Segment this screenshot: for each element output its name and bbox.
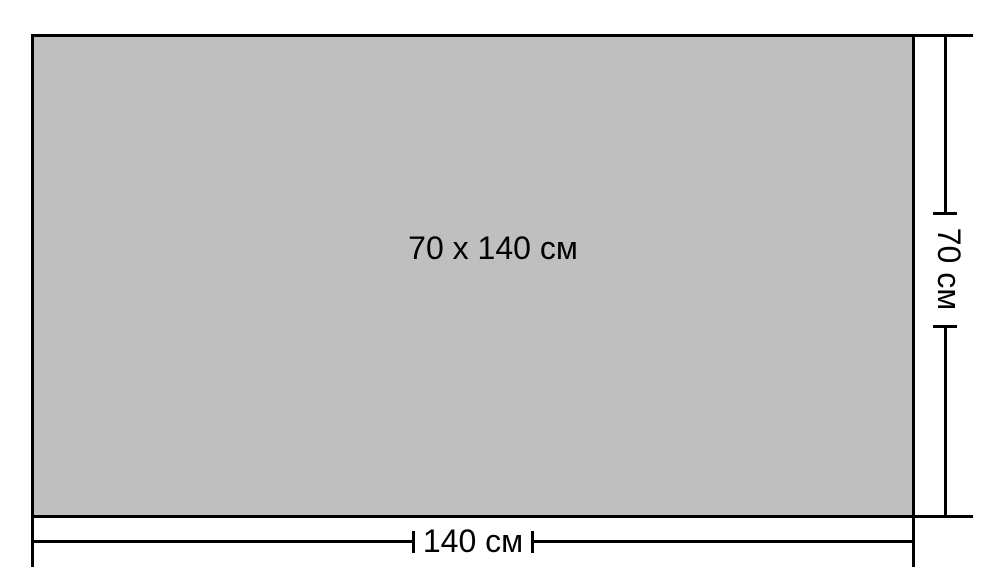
size-diagram: 70 x 140 см 70 см 140 см xyxy=(0,0,1000,582)
width-dimension-tick-left xyxy=(412,531,415,553)
height-dimension-tick-upper xyxy=(933,212,957,215)
product-rectangle xyxy=(31,34,915,518)
height-dimension-line-lower-segment xyxy=(944,326,947,518)
width-dimension-line-right-segment xyxy=(532,540,915,543)
width-dimension-tick-right xyxy=(531,531,534,553)
size-label: 70 x 140 см xyxy=(408,232,578,264)
height-dimension-label: 70 см xyxy=(933,228,965,310)
width-dimension-label: 140 см xyxy=(423,525,523,557)
width-dimension-line-left-segment xyxy=(31,540,414,543)
height-dimension-line-upper-segment xyxy=(944,34,947,215)
height-dimension-tick-lower xyxy=(933,325,957,328)
